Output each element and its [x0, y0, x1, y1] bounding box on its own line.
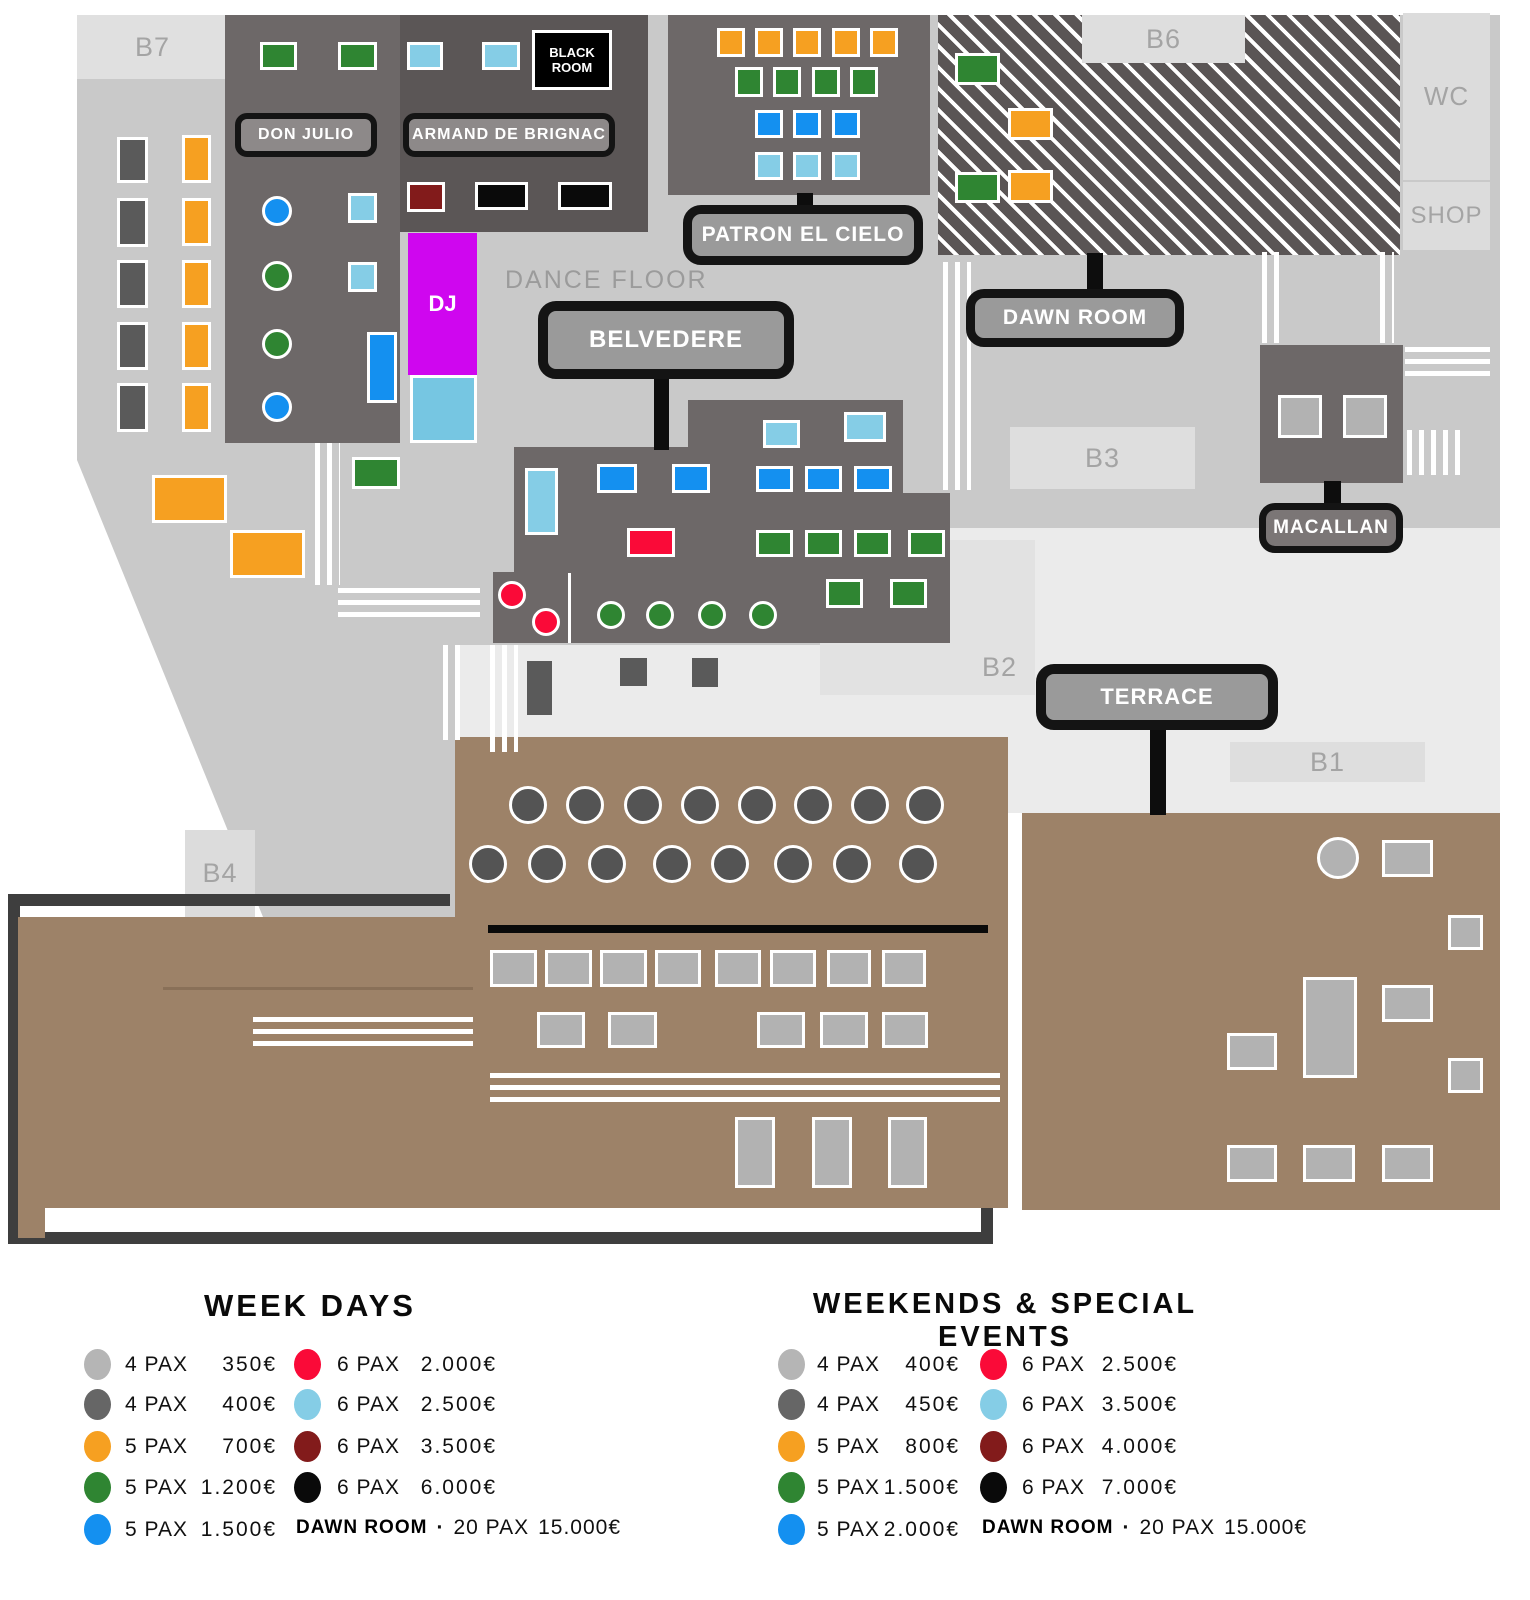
legend-pax: 4 PAX [125, 1393, 188, 1417]
table-patron[interactable] [832, 110, 860, 138]
stool[interactable] [509, 786, 547, 824]
table-donjulio[interactable] [338, 42, 377, 70]
table-belvedere[interactable] [826, 579, 863, 608]
legend-weekdays-title: WEEK DAYS [160, 1288, 460, 1324]
table-patron[interactable] [850, 67, 878, 97]
sign-macallan-label: MACALLAN [1273, 517, 1389, 539]
table-patron[interactable] [793, 152, 821, 180]
table-belvedere[interactable] [498, 581, 526, 609]
legend-dot [84, 1349, 111, 1380]
legend-price: 2.000€ [380, 1353, 497, 1377]
legend-price: 3.500€ [1060, 1393, 1178, 1417]
table-belvedere[interactable] [854, 466, 892, 492]
table-terrace[interactable] [1227, 1033, 1277, 1070]
table-b7[interactable] [117, 137, 148, 183]
table-terrace-bar[interactable] [608, 1012, 657, 1048]
table-belvedere[interactable] [698, 601, 726, 629]
area-b3[interactable]: B3 [1010, 427, 1195, 489]
legend-dot [294, 1472, 321, 1503]
table-belvedere[interactable] [756, 530, 793, 557]
table-patron[interactable] [870, 28, 898, 57]
legend-dot [778, 1514, 805, 1545]
table-terrace[interactable] [1382, 1145, 1433, 1182]
table-terrace[interactable] [1382, 840, 1433, 877]
table-belvedere[interactable] [844, 412, 886, 442]
stool[interactable] [588, 845, 626, 883]
table-donjulio[interactable] [262, 196, 292, 226]
table-armand[interactable] [475, 182, 528, 210]
dj-booth[interactable]: DJ [408, 233, 477, 375]
table-patron[interactable] [735, 67, 763, 97]
legend-dot [294, 1431, 321, 1462]
stool[interactable] [528, 845, 566, 883]
table-donjulio[interactable] [262, 392, 292, 422]
legend-price: 400€ [180, 1393, 277, 1417]
area-shop[interactable]: SHOP [1403, 182, 1490, 250]
table-armand[interactable] [482, 42, 520, 70]
legend-dot [980, 1472, 1007, 1503]
legend-price: 7.000€ [1060, 1476, 1178, 1500]
area-shop-label: SHOP [1410, 202, 1482, 230]
table-donjulio[interactable] [348, 193, 377, 223]
stool[interactable] [851, 786, 889, 824]
legend-dawn-room-weekdays: DAWN ROOM · 20 PAX 15.000€ [296, 1516, 621, 1540]
legend-price: 2.500€ [380, 1393, 497, 1417]
legend-price: 1.500€ [860, 1476, 960, 1500]
sign-don-julio[interactable]: DON JULIO [235, 113, 377, 157]
legend-dot [778, 1389, 805, 1420]
legend-weekends-title: WEEKENDS & SPECIAL EVENTS [770, 1288, 1240, 1354]
legend-dot [294, 1389, 321, 1420]
table-donjulio[interactable] [348, 262, 377, 292]
table-belvedere[interactable] [908, 530, 945, 557]
area-b7-label: B7 [135, 32, 170, 63]
table-belvedere[interactable] [532, 608, 560, 636]
table-terrace[interactable] [1448, 1058, 1483, 1093]
area-wc[interactable]: WC [1403, 13, 1490, 180]
legend-pax: 5 PAX [125, 1518, 188, 1542]
legend-price: 350€ [180, 1353, 277, 1377]
table-patron[interactable] [773, 67, 801, 97]
sign-terrace[interactable]: TERRACE [1036, 664, 1278, 730]
table-b7[interactable] [182, 322, 211, 370]
stool[interactable] [899, 845, 937, 883]
table-dawnroom[interactable] [1008, 170, 1053, 203]
dance-floor-label: DANCE FLOOR [505, 266, 708, 295]
legend-dot [84, 1514, 111, 1545]
table-dawnroom[interactable] [955, 172, 1000, 203]
table-b7[interactable] [182, 198, 211, 246]
legend-dawn-room-weekends: DAWN ROOM · 20 PAX 15.000€ [982, 1516, 1307, 1540]
table-belvedere[interactable] [646, 601, 674, 629]
dj-label: DJ [428, 291, 456, 317]
table-terrace-bar[interactable] [545, 950, 592, 987]
table-b7[interactable] [117, 383, 148, 432]
legend-dot [84, 1431, 111, 1462]
legend-price: 4.000€ [1060, 1435, 1178, 1459]
table-armand[interactable] [407, 42, 443, 70]
table-patron[interactable] [793, 110, 821, 138]
stool[interactable] [653, 845, 691, 883]
stool[interactable] [681, 786, 719, 824]
sign-stem [1150, 726, 1166, 815]
wall [8, 894, 450, 906]
table-donjulio[interactable] [260, 42, 297, 70]
stool[interactable] [469, 845, 507, 883]
legend-pax: 4 PAX [125, 1353, 188, 1377]
table-patron[interactable] [717, 28, 745, 57]
table-terrace-bar[interactable] [882, 1012, 928, 1048]
legend-dot [778, 1431, 805, 1462]
sign-macallan[interactable]: MACALLAN [1259, 503, 1403, 553]
table-belvedere[interactable] [756, 466, 793, 492]
stool[interactable] [794, 786, 832, 824]
table-belvedere[interactable] [749, 601, 777, 629]
legend-price: 700€ [180, 1435, 277, 1459]
table-terrace[interactable] [1227, 1145, 1277, 1182]
table-terrace-bar[interactable] [655, 950, 701, 987]
sign-armand-de-brignac[interactable]: ARMAND DE BRIGNAC [403, 113, 615, 157]
table-terrace[interactable] [1382, 985, 1433, 1022]
area-wc-label: WC [1424, 81, 1469, 112]
table-b7[interactable] [117, 198, 148, 247]
table-terrace-bar[interactable] [882, 950, 926, 987]
legend-dot [980, 1431, 1007, 1462]
stool[interactable] [906, 786, 944, 824]
legend-price: 400€ [860, 1353, 960, 1377]
table-macallan[interactable] [1343, 395, 1387, 438]
table-terrace-bar[interactable] [735, 1117, 775, 1188]
legend-price: 450€ [860, 1393, 960, 1417]
table-floor[interactable] [352, 457, 400, 489]
wall [8, 1232, 993, 1244]
table-belvedere[interactable] [672, 464, 710, 493]
table-terrace-bar[interactable] [770, 950, 816, 987]
table-dawnroom[interactable] [955, 53, 1000, 85]
table-b7[interactable] [182, 260, 211, 308]
legend-dot [294, 1349, 321, 1380]
table-terrace[interactable] [1303, 1145, 1355, 1182]
legend-price: 1.200€ [180, 1476, 277, 1500]
table-b7[interactable] [182, 135, 211, 183]
table-terrace-bar[interactable] [820, 1012, 868, 1048]
table-terrace-bar[interactable] [757, 1012, 805, 1048]
stool[interactable] [566, 786, 604, 824]
table-terrace-bar[interactable] [490, 950, 537, 987]
legend-pax: 5 PAX [125, 1435, 188, 1459]
area-b4-label: B4 [202, 858, 237, 889]
table-terrace-bar[interactable] [715, 950, 761, 987]
table-terrace-bar[interactable] [812, 1117, 852, 1188]
dj-booth-table[interactable] [410, 375, 477, 443]
sign-belvedere[interactable]: BELVEDERE [538, 301, 794, 379]
sign-terrace-label: TERRACE [1100, 684, 1213, 710]
area-b7[interactable]: B7 [77, 15, 228, 79]
table-b7[interactable] [182, 383, 211, 432]
table-floor[interactable] [152, 475, 227, 523]
table-patron[interactable] [755, 28, 783, 57]
legend-price: 1.500€ [180, 1518, 277, 1542]
table-belvedere[interactable] [597, 601, 625, 629]
table-patron[interactable] [812, 67, 840, 97]
sign-dawn-room-label: DAWN ROOM [1003, 306, 1147, 330]
table-belvedere[interactable] [805, 530, 842, 557]
table-terrace[interactable] [1317, 837, 1359, 879]
table-donjulio[interactable] [262, 261, 292, 291]
stool[interactable] [738, 786, 776, 824]
sign-stem [654, 376, 669, 450]
table-terrace-bar[interactable] [537, 1012, 585, 1048]
table-belvedere[interactable] [890, 579, 927, 608]
table-floor[interactable] [230, 530, 305, 578]
legend-price: 2.500€ [1060, 1353, 1178, 1377]
table-macallan[interactable] [1278, 395, 1322, 438]
table-patron[interactable] [832, 28, 860, 57]
table-terrace[interactable] [1448, 915, 1483, 950]
table-terrace[interactable] [1303, 977, 1357, 1078]
table-armand[interactable] [558, 182, 612, 210]
sign-armand-label: ARMAND DE BRIGNAC [412, 126, 606, 144]
area-b3-label: B3 [1085, 443, 1120, 474]
table-dawnroom[interactable] [1008, 108, 1053, 140]
table-terrace-bar[interactable] [600, 950, 647, 987]
sign-don-julio-label: DON JULIO [258, 126, 354, 144]
legend-price: 6.000€ [380, 1476, 497, 1500]
table-patron[interactable] [755, 152, 783, 180]
legend-pax: 5 PAX [125, 1476, 188, 1500]
sign-stem [1087, 253, 1103, 293]
black-room-label: BLACKROOM [549, 45, 595, 75]
legend-dot [84, 1472, 111, 1503]
area-b1-label: B1 [1310, 747, 1345, 778]
area-b6[interactable]: B6 [1082, 15, 1245, 63]
stool[interactable] [833, 845, 871, 883]
stool[interactable] [711, 845, 749, 883]
table-b7[interactable] [117, 260, 148, 308]
legend-price: 2.000€ [860, 1518, 960, 1542]
table-terrace-bar[interactable] [827, 950, 871, 987]
table-belvedere[interactable] [805, 466, 842, 492]
stage-area-tab [18, 1208, 45, 1238]
area-b6-label: B6 [1146, 24, 1181, 55]
table-terrace-bar[interactable] [888, 1117, 927, 1188]
table-belvedere[interactable] [597, 464, 637, 493]
table-belvedere[interactable] [525, 468, 558, 535]
table-belvedere[interactable] [854, 530, 891, 557]
table-b7[interactable] [117, 322, 148, 370]
legend-dot [84, 1389, 111, 1420]
table-patron[interactable] [755, 110, 783, 138]
stool[interactable] [774, 845, 812, 883]
table-patron[interactable] [832, 152, 860, 180]
table-donjulio[interactable] [262, 329, 292, 359]
legend-price: 3.500€ [380, 1435, 497, 1459]
black-room[interactable]: BLACKROOM [532, 30, 612, 90]
sign-dawn-room[interactable]: DAWN ROOM [966, 289, 1184, 347]
table-patron[interactable] [793, 28, 821, 57]
area-b2-label: B2 [982, 652, 1017, 683]
legend-dot [980, 1389, 1007, 1420]
table-armand[interactable] [407, 182, 445, 212]
legend-price: 800€ [860, 1435, 960, 1459]
table-belvedere[interactable] [627, 528, 675, 557]
legend-dot [778, 1349, 805, 1380]
legend-dot [778, 1472, 805, 1503]
stool[interactable] [624, 786, 662, 824]
sign-patron-label: PATRON EL CIELO [702, 223, 905, 247]
table-belvedere[interactable] [763, 420, 800, 448]
sign-belvedere-label: BELVEDERE [589, 326, 743, 354]
area-b1[interactable]: B1 [1230, 742, 1425, 782]
legend-dot [980, 1349, 1007, 1380]
table-donjulio[interactable] [367, 332, 397, 403]
sign-patron-el-cielo[interactable]: PATRON EL CIELO [683, 205, 923, 265]
